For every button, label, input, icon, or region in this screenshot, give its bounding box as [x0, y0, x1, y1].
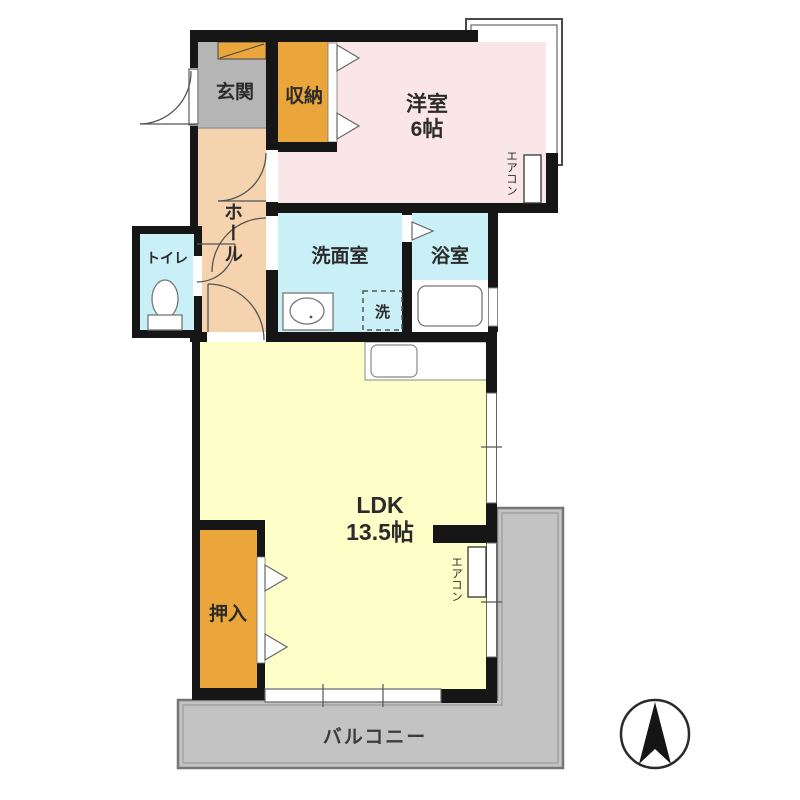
toilet-icon: [152, 280, 178, 318]
aircon-unit-western-icon: [524, 155, 541, 203]
storage-floor: [278, 42, 328, 143]
closet-door-strip: [257, 557, 265, 663]
aircon-unit-ldk-icon: [468, 547, 486, 597]
bathtub-icon: [418, 286, 482, 326]
floor-plan: 玄関 収納 洋室 6帖 ホール トイレ 洗面室 浴室 洗 LDK 13.5帖 押…: [0, 0, 800, 800]
kitchen-sink-icon: [371, 345, 417, 377]
floor-plan-drawing: [0, 0, 800, 800]
north-arrow-icon: [621, 700, 689, 768]
closet-floor: [200, 530, 257, 688]
storage-door-strip: [328, 43, 337, 142]
toilet-tank-icon: [148, 315, 182, 330]
